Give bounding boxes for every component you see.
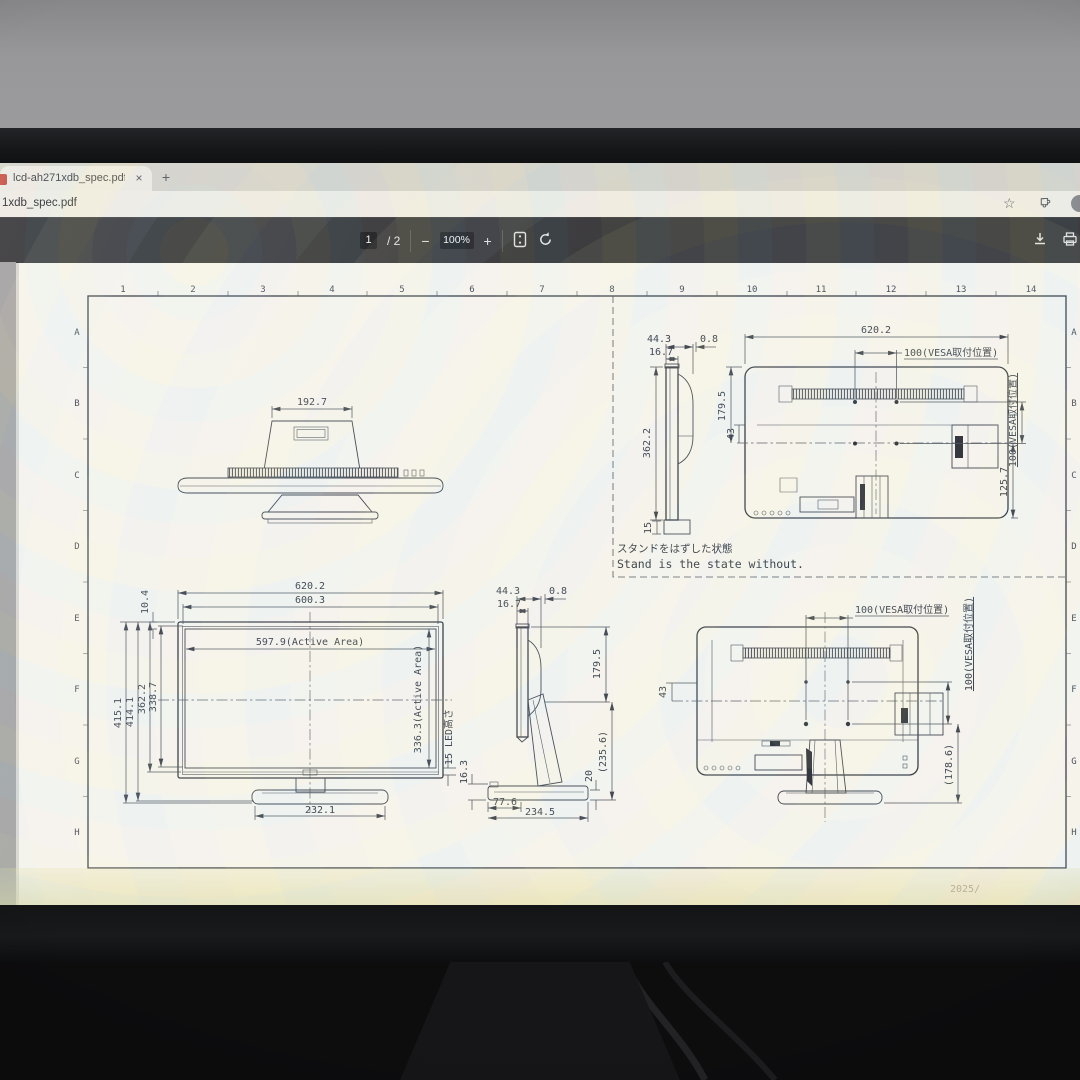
page-count-label: / 2 [387, 234, 400, 248]
pdf-toolbar: 1 / 2 − 100% + [0, 217, 1080, 263]
svg-text:E: E [1071, 614, 1076, 624]
svg-text:11: 11 [816, 285, 827, 295]
svg-text:(178.6): (178.6) [944, 744, 955, 786]
svg-text:4: 4 [329, 285, 334, 295]
svg-text:179.5: 179.5 [717, 391, 728, 421]
svg-text:15: 15 [643, 522, 654, 534]
svg-text:5: 5 [399, 285, 404, 295]
dim-side-ns-height: 362.2 [642, 367, 663, 520]
zoom-in-button[interactable]: + [484, 233, 492, 249]
svg-text:F: F [74, 685, 79, 695]
svg-text:100(VESA取付位置): 100(VESA取付位置) [904, 346, 998, 359]
svg-text:597.9(Active Area): 597.9(Active Area) [256, 637, 364, 648]
dim-rear-ws-vesa-horizontal: 100(VESA取付位置) [806, 603, 949, 720]
svg-text:362.2: 362.2 [642, 428, 653, 458]
dim-front-base-width: 232.1 [255, 805, 385, 820]
svg-text:10.4: 10.4 [140, 590, 151, 614]
profile-avatar[interactable] [1071, 195, 1080, 212]
browser-tab-strip: lcd-ah271xdb_spec.pdf × + [0, 163, 1080, 191]
svg-text:20: 20 [584, 770, 595, 782]
svg-text:600.3: 600.3 [295, 595, 325, 606]
dim-rear-ns-offset: 43 [726, 425, 745, 443]
svg-text:H: H [74, 828, 79, 838]
dim-front-h-active: 336.3(Active Area) [413, 629, 429, 768]
svg-text:0.8: 0.8 [549, 586, 567, 597]
dim-front-w-active: 597.9(Active Area) [186, 637, 435, 649]
tab-title: lcd-ah271xdb_spec.pdf [13, 172, 125, 184]
svg-text:16.3: 16.3 [459, 760, 470, 784]
svg-text:C: C [1071, 471, 1076, 481]
svg-text:100(VESA取付位置): 100(VESA取付位置) [855, 603, 949, 616]
pdf-favicon-icon [0, 174, 7, 185]
side-view-no-stand: 44.3 16.7 0.8 362.2 [642, 334, 718, 534]
svg-text:234.5: 234.5 [525, 807, 555, 818]
svg-text:415.1: 415.1 [113, 698, 124, 728]
svg-text:8: 8 [609, 285, 614, 295]
zoom-level-value[interactable]: 100% [440, 232, 474, 249]
toolbar-divider [410, 230, 411, 252]
stand-removed-note: スタンドをはずした状態 Stand is the state without. [617, 542, 804, 571]
svg-text:14: 14 [1026, 285, 1037, 295]
dim-front-w-inner: 600.3 [183, 595, 438, 624]
svg-text:44.3: 44.3 [647, 334, 671, 345]
dim-side-ns-foot: 15 [643, 521, 661, 534]
page-number-input[interactable]: 1 [360, 232, 377, 249]
grid-row-labels-right: A B C D E F G H [1071, 328, 1077, 838]
svg-text:16.7: 16.7 [649, 347, 673, 358]
svg-text:125.7: 125.7 [999, 467, 1010, 497]
dim-top-view-stand-width: 192.7 [272, 397, 352, 418]
extensions-icon[interactable] [1038, 196, 1053, 216]
dim-front-bezel: 10.4 [140, 590, 157, 639]
svg-text:D: D [1071, 542, 1076, 552]
download-icon[interactable] [1032, 231, 1048, 250]
grid-row-labels-left: A B C D E F G H [74, 328, 80, 838]
svg-text:620.2: 620.2 [861, 325, 891, 336]
dim-rear-ws-lower: (178.6) [884, 724, 962, 803]
side-view-with-stand: 44.3 16.7 0.8 179.5 [459, 586, 616, 822]
svg-text:1: 1 [120, 285, 125, 295]
address-bar[interactable]: 1xdb_spec.pdf ☆ [0, 191, 1080, 217]
rear-view-with-stand: 100(VESA取付位置) 100(VESA取付位置) 43 (178.6) [658, 597, 975, 822]
svg-text:362.2: 362.2 [137, 684, 148, 714]
svg-text:414.1: 414.1 [125, 697, 136, 727]
browser-tab[interactable]: lcd-ah271xdb_spec.pdf × [0, 166, 152, 191]
svg-text:620.2: 620.2 [295, 581, 325, 592]
svg-text:100(VESA取付位置): 100(VESA取付位置) [1006, 373, 1019, 467]
print-icon[interactable] [1062, 231, 1078, 250]
svg-text:7: 7 [539, 285, 544, 295]
monitor-bezel-bottom [0, 905, 1080, 962]
top-view: 192.7 [178, 397, 443, 523]
rear-view-no-stand: 620.2 100(VESA取付位置) 100(VESA取付位置) [717, 325, 1026, 518]
svg-text:E: E [74, 614, 79, 624]
grid-col-labels: 1 2 3 4 5 6 7 8 9 10 11 12 13 14 [120, 285, 1036, 295]
svg-text:0.8: 0.8 [700, 334, 718, 345]
dim-side-ws-total: (235.6) [590, 702, 616, 800]
drawing-frame: 1 2 3 4 5 6 7 8 9 10 11 12 13 14 A [74, 285, 1077, 868]
url-text[interactable]: 1xdb_spec.pdf [2, 197, 77, 209]
photo-of-monitor: lcd-ah271xdb_spec.pdf × + 1xdb_spec.pdf … [0, 0, 1080, 1080]
rotate-page-button[interactable] [537, 231, 554, 251]
monitor-bezel-top [0, 128, 1080, 163]
dim-side-ws-depth: 44.3 [496, 586, 541, 648]
pdf-toolbar-center: 1 / 2 − 100% + [360, 218, 554, 263]
svg-text:Stand is the state without.: Stand is the state without. [617, 557, 804, 571]
dim-side-ws-panel: 16.7 [497, 599, 528, 640]
fit-page-button[interactable] [513, 231, 527, 251]
svg-text:F: F [1071, 685, 1076, 695]
svg-text:15 LED高さ: 15 LED高さ [442, 709, 455, 765]
monitor-screen: lcd-ah271xdb_spec.pdf × + 1xdb_spec.pdf … [0, 163, 1080, 905]
svg-text:232.1: 232.1 [305, 805, 335, 816]
svg-text:43: 43 [658, 686, 669, 698]
svg-text:3: 3 [260, 285, 265, 295]
dim-side-ns-lip: 0.8 [696, 334, 718, 352]
bookmark-star-icon[interactable]: ☆ [1003, 195, 1016, 212]
dim-side-ws-lip-h: 16.3 [459, 760, 488, 810]
pdf-toolbar-right [1032, 218, 1080, 263]
svg-text:16.7: 16.7 [497, 599, 521, 610]
svg-text:(235.6): (235.6) [598, 731, 609, 773]
zoom-out-button[interactable]: − [421, 233, 429, 249]
wall-background [0, 0, 1080, 128]
dim-side-ws-base: 20 [584, 770, 600, 810]
spec-drawing-sheet: 1 2 3 4 5 6 7 8 9 10 11 12 13 14 A [0, 262, 1080, 905]
svg-text:77.6: 77.6 [493, 797, 517, 808]
tab-close-icon[interactable]: × [131, 170, 147, 186]
page-bottom-strip: 2025/ [0, 868, 1080, 905]
svg-text:C: C [74, 471, 79, 481]
svg-text:9: 9 [679, 285, 684, 295]
svg-text:100(VESA取付位置): 100(VESA取付位置) [962, 597, 975, 691]
svg-text:12: 12 [886, 285, 897, 295]
svg-text:A: A [74, 328, 80, 338]
svg-text:338.7: 338.7 [148, 682, 159, 712]
svg-text:336.3(Active Area): 336.3(Active Area) [413, 645, 424, 753]
svg-text:179.5: 179.5 [592, 649, 603, 679]
svg-text:2: 2 [190, 285, 195, 295]
svg-text:B: B [74, 399, 79, 409]
svg-text:スタンドをはずした状態: スタンドをはずした状態 [617, 542, 733, 555]
dim-side-ns-panel: 16.7 [649, 347, 678, 374]
svg-text:10: 10 [747, 285, 758, 295]
svg-text:192.7: 192.7 [297, 397, 327, 408]
svg-text:43: 43 [726, 428, 737, 440]
svg-text:D: D [74, 542, 79, 552]
svg-text:A: A [1071, 328, 1077, 338]
svg-text:6: 6 [469, 285, 474, 295]
front-view: 620.2 600.3 597.9(Active Area) 10.4 [113, 581, 456, 820]
dim-front-led: 15 LED高さ [442, 709, 456, 786]
dim-side-ws-base-front: 77.6 [488, 797, 521, 812]
dim-side-ws-lip: 0.8 [545, 586, 567, 604]
svg-text:H: H [1071, 828, 1076, 838]
svg-text:G: G [1071, 757, 1076, 767]
new-tab-button[interactable]: + [158, 170, 174, 186]
svg-text:G: G [74, 757, 79, 767]
svg-text:B: B [1071, 399, 1076, 409]
svg-text:13: 13 [956, 285, 967, 295]
svg-text:44.3: 44.3 [496, 586, 520, 597]
toolbar-divider [502, 230, 503, 252]
dim-side-ws-upper: 179.5 [531, 627, 610, 702]
footer-faint-text: 2025/ [950, 884, 980, 895]
dim-rear-ws-offset: 43 [658, 683, 697, 701]
